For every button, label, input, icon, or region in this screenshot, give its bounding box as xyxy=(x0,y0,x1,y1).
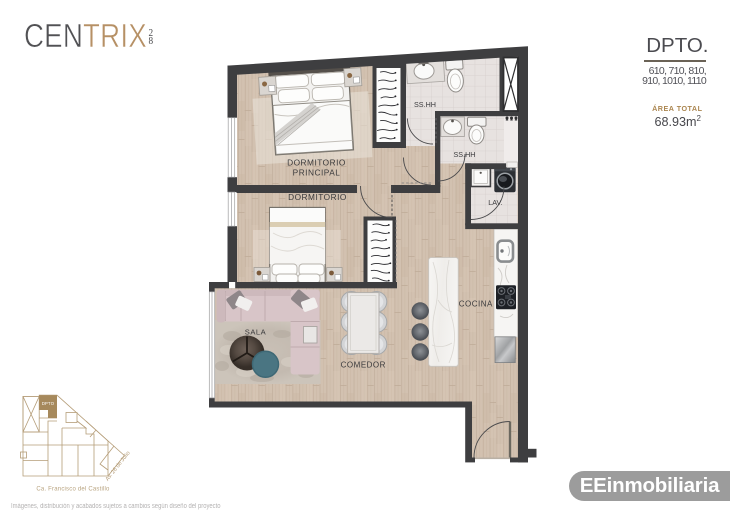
svg-text:SS.HH: SS.HH xyxy=(454,150,476,159)
svg-text:DORMITORIO: DORMITORIO xyxy=(287,158,346,168)
svg-text:COMEDOR: COMEDOR xyxy=(341,361,386,370)
svg-text:COCINA: COCINA xyxy=(459,300,493,309)
svg-text:DORMITORIO: DORMITORIO xyxy=(288,192,347,202)
svg-text:DPTO: DPTO xyxy=(42,401,55,406)
svg-text:Ca. Francisco del Castillo: Ca. Francisco del Castillo xyxy=(36,487,110,493)
svg-text:Av. 28 de Julio: Av. 28 de Julio xyxy=(105,450,132,482)
svg-text:SS.HH: SS.HH xyxy=(414,100,436,109)
svg-text:PRINCIPAL: PRINCIPAL xyxy=(293,168,341,178)
svg-text:SALA: SALA xyxy=(245,327,267,336)
svg-text:LAV.: LAV. xyxy=(488,198,502,207)
